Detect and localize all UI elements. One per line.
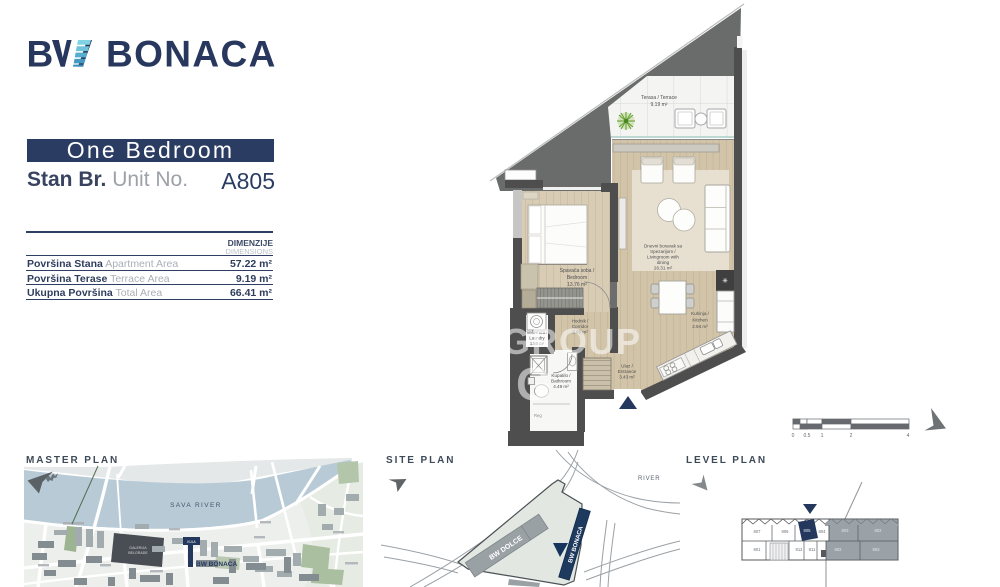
svg-text:26.31 m²: 26.31 m² bbox=[654, 266, 673, 271]
svg-text:803: 803 bbox=[842, 528, 850, 533]
svg-text:Kupatilo /: Kupatilo / bbox=[551, 373, 571, 378]
svg-text:Reg: Reg bbox=[534, 413, 542, 418]
svg-text:0: 0 bbox=[792, 433, 795, 439]
svg-text:GROUP: GROUP bbox=[502, 321, 642, 362]
svg-text:13.76 m²: 13.76 m² bbox=[567, 282, 587, 288]
svg-text:Dnevni boravak sa: Dnevni boravak sa bbox=[644, 244, 682, 249]
svg-text:1: 1 bbox=[821, 433, 824, 439]
svg-text:807: 807 bbox=[754, 529, 762, 534]
svg-text:801: 801 bbox=[754, 547, 762, 552]
svg-text:4: 4 bbox=[907, 433, 910, 439]
svg-text:BELGRADE: BELGRADE bbox=[128, 551, 148, 555]
svg-text:805: 805 bbox=[804, 528, 812, 533]
svg-text:804: 804 bbox=[819, 529, 827, 534]
svg-text:dining: dining bbox=[657, 260, 670, 265]
svg-text:802: 802 bbox=[835, 547, 843, 552]
svg-text:812: 812 bbox=[796, 547, 804, 552]
svg-text:G: G bbox=[516, 358, 552, 410]
svg-text:803: 803 bbox=[873, 547, 881, 552]
svg-text:RIVER: RIVER bbox=[638, 476, 660, 482]
svg-text:✳: ✳ bbox=[722, 277, 728, 285]
svg-text:811: 811 bbox=[809, 547, 816, 552]
svg-text:2: 2 bbox=[850, 433, 853, 439]
svg-text:Bathroom: Bathroom bbox=[551, 379, 571, 384]
svg-text:9.19 m²: 9.19 m² bbox=[651, 102, 668, 108]
svg-text:GALERIJA: GALERIJA bbox=[129, 546, 147, 550]
svg-text:Kuhinja /: Kuhinja / bbox=[691, 311, 710, 316]
svg-text:Terasa / Terrace: Terasa / Terrace bbox=[641, 95, 677, 101]
svg-text:KULA: KULA bbox=[187, 540, 196, 544]
svg-text:802: 802 bbox=[875, 528, 883, 533]
svg-text:SAVA RIVER: SAVA RIVER bbox=[170, 502, 222, 509]
svg-text:2.94 m²: 2.94 m² bbox=[692, 324, 708, 329]
svg-text:Kitchen: Kitchen bbox=[692, 318, 708, 323]
svg-text:Bedroom: Bedroom bbox=[567, 275, 587, 281]
svg-text:BW BONACA: BW BONACA bbox=[196, 561, 237, 568]
svg-text:Entrance: Entrance bbox=[618, 369, 637, 374]
svg-text:0.5: 0.5 bbox=[804, 433, 811, 439]
svg-text:Spavaća soba /: Spavaća soba / bbox=[560, 268, 595, 274]
svg-text:806: 806 bbox=[782, 529, 790, 534]
svg-text:4.49 m²: 4.49 m² bbox=[553, 384, 569, 389]
svg-text:trpezarijom /: trpezarijom / bbox=[650, 249, 676, 254]
svg-text:3.43 m²: 3.43 m² bbox=[619, 375, 635, 380]
svg-text:Livingroom with: Livingroom with bbox=[647, 255, 679, 260]
svg-text:Ulaz /: Ulaz / bbox=[621, 364, 633, 369]
